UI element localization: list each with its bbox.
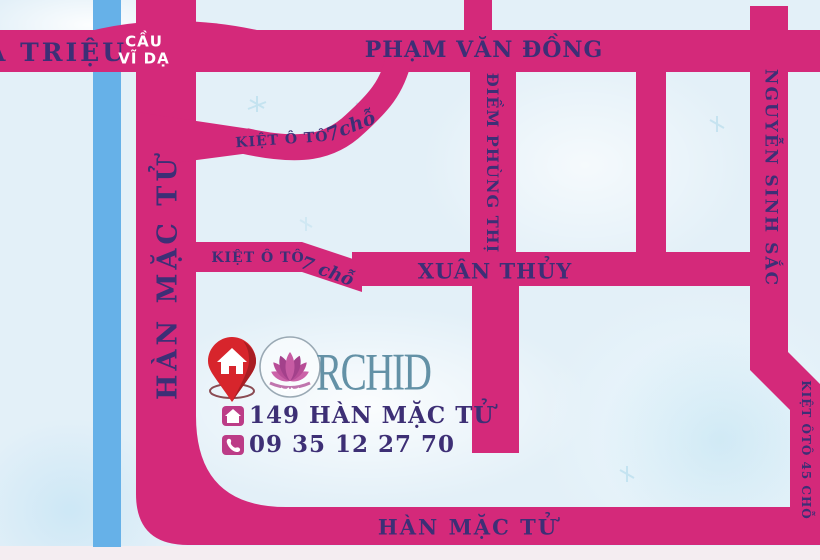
house-icon <box>222 406 244 426</box>
map-canvas: À TRIỆU CẦU VĨ DẠ PHẠM VĂN ĐỒNG KIỆT Ô T… <box>0 0 820 560</box>
location-pin-icon <box>208 337 256 402</box>
lotus-logo-icon <box>260 337 320 397</box>
logo-letters: RCHID <box>316 349 430 397</box>
logo-layer <box>0 0 820 560</box>
phone-icon <box>222 435 244 455</box>
